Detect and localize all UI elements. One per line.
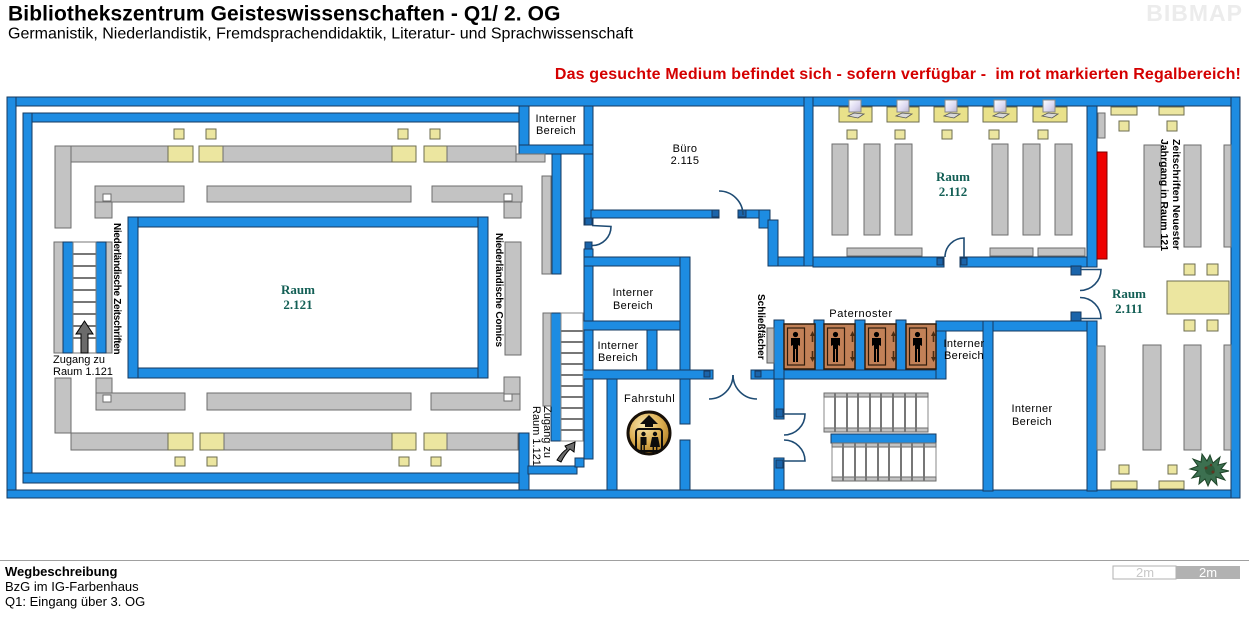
svg-text:Jahrgang in Raum 121: Jahrgang in Raum 121	[1158, 139, 1170, 251]
svg-text:Bereich: Bereich	[944, 350, 984, 362]
svg-text:Schließfächer: Schließfächer	[755, 294, 766, 360]
svg-text:Germanistik, Niederlandistik,: Germanistik, Niederlandistik, Fremdsprac…	[8, 26, 634, 43]
svg-text:Paternoster: Paternoster	[829, 308, 892, 320]
svg-text:Zeitschriften Neuester: Zeitschriften Neuester	[1170, 139, 1182, 250]
svg-text:BzG im IG-Farbenhaus: BzG im IG-Farbenhaus	[5, 579, 139, 594]
svg-text:Interner: Interner	[535, 113, 576, 125]
svg-text:2.112: 2.112	[939, 184, 968, 199]
svg-text:Fahrstuhl: Fahrstuhl	[624, 393, 675, 405]
svg-text:Q1: Eingang über 3. OG: Q1: Eingang über 3. OG	[5, 594, 145, 609]
svg-text:Bereich: Bereich	[613, 300, 653, 312]
svg-text:Wegbeschreibung: Wegbeschreibung	[5, 564, 118, 579]
svg-text:Raum 1.121: Raum 1.121	[53, 366, 113, 378]
svg-text:Niederländische Zeitschriften: Niederländische Zeitschriften	[111, 223, 122, 355]
svg-text:Niederländische Comics: Niederländische Comics	[493, 233, 504, 347]
svg-text:Bereich: Bereich	[536, 125, 576, 137]
svg-text:Raum: Raum	[281, 282, 315, 297]
svg-text:Raum: Raum	[936, 169, 970, 184]
svg-text:Bereich: Bereich	[598, 352, 638, 364]
svg-text:Interner: Interner	[1011, 403, 1052, 415]
svg-text:Büro: Büro	[673, 143, 698, 155]
svg-text:Das gesuchte Medium befindet s: Das gesuchte Medium befindet sich - sofe…	[555, 66, 1241, 83]
svg-text:2m: 2m	[1136, 565, 1154, 580]
svg-text:BIBMAP: BIBMAP	[1146, 0, 1243, 26]
svg-text:Bereich: Bereich	[1012, 416, 1052, 428]
svg-text:Interner: Interner	[612, 287, 653, 299]
svg-text:2.111: 2.111	[1115, 301, 1143, 316]
svg-text:Raum 1.121: Raum 1.121	[530, 406, 542, 466]
svg-text:Bibliothekszentrum Geisteswiss: Bibliothekszentrum Geisteswissenschaften…	[8, 3, 561, 26]
svg-text:2.115: 2.115	[671, 155, 700, 167]
svg-text:2.121: 2.121	[283, 297, 312, 312]
svg-text:2m: 2m	[1199, 565, 1217, 580]
svg-text:Interner: Interner	[943, 338, 984, 350]
svg-text:Raum: Raum	[1112, 286, 1146, 301]
svg-text:Zugang zu: Zugang zu	[53, 354, 105, 366]
svg-text:Interner: Interner	[597, 340, 638, 352]
